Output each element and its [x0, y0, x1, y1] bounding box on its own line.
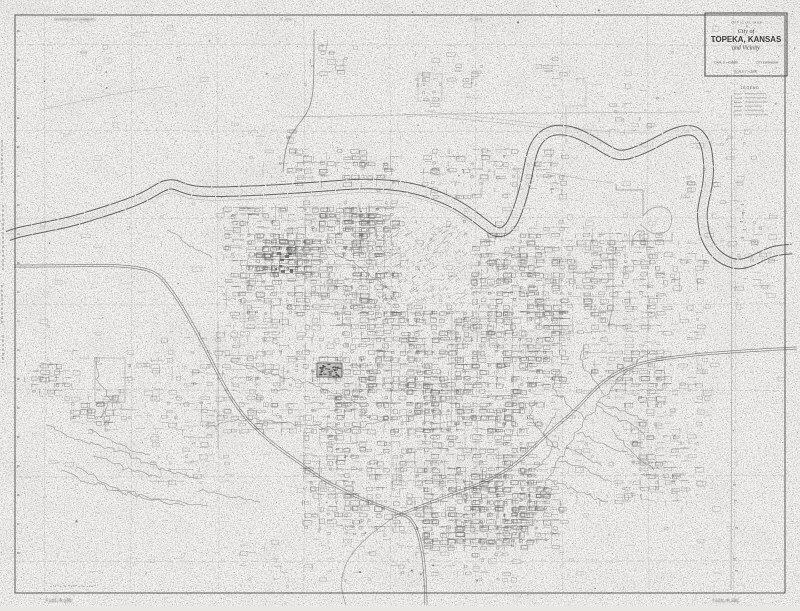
svg-text:SCALE 1" = 2000': SCALE 1" = 2000' — [734, 70, 758, 74]
svg-text:R. 16 E.: R. 16 E. — [470, 18, 483, 22]
svg-text:SHAWNEE CO. KANSAS: SHAWNEE CO. KANSAS — [54, 18, 96, 22]
svg-text:T.12S.-R.15E.: T.12S.-R.15E. — [45, 598, 73, 603]
svg-text:TOPEKA, KANSAS: TOPEKA, KANSAS — [711, 35, 781, 44]
svg-text:OFFICIAL MAP: OFFICIAL MAP — [731, 21, 763, 25]
svg-text:CITY ENGINEER: CITY ENGINEER — [756, 61, 778, 65]
svg-text:City of: City of — [738, 28, 756, 35]
svg-text:T.12S.-R.16E.: T.12S.-R.16E. — [712, 598, 740, 603]
svg-text:CARL D. HOWER: CARL D. HOWER — [714, 61, 737, 65]
svg-text:R. 15 E.: R. 15 E. — [280, 18, 293, 22]
svg-text:and Vicinity: and Vicinity — [732, 46, 760, 52]
svg-text:LEGEND: LEGEND — [741, 86, 760, 90]
